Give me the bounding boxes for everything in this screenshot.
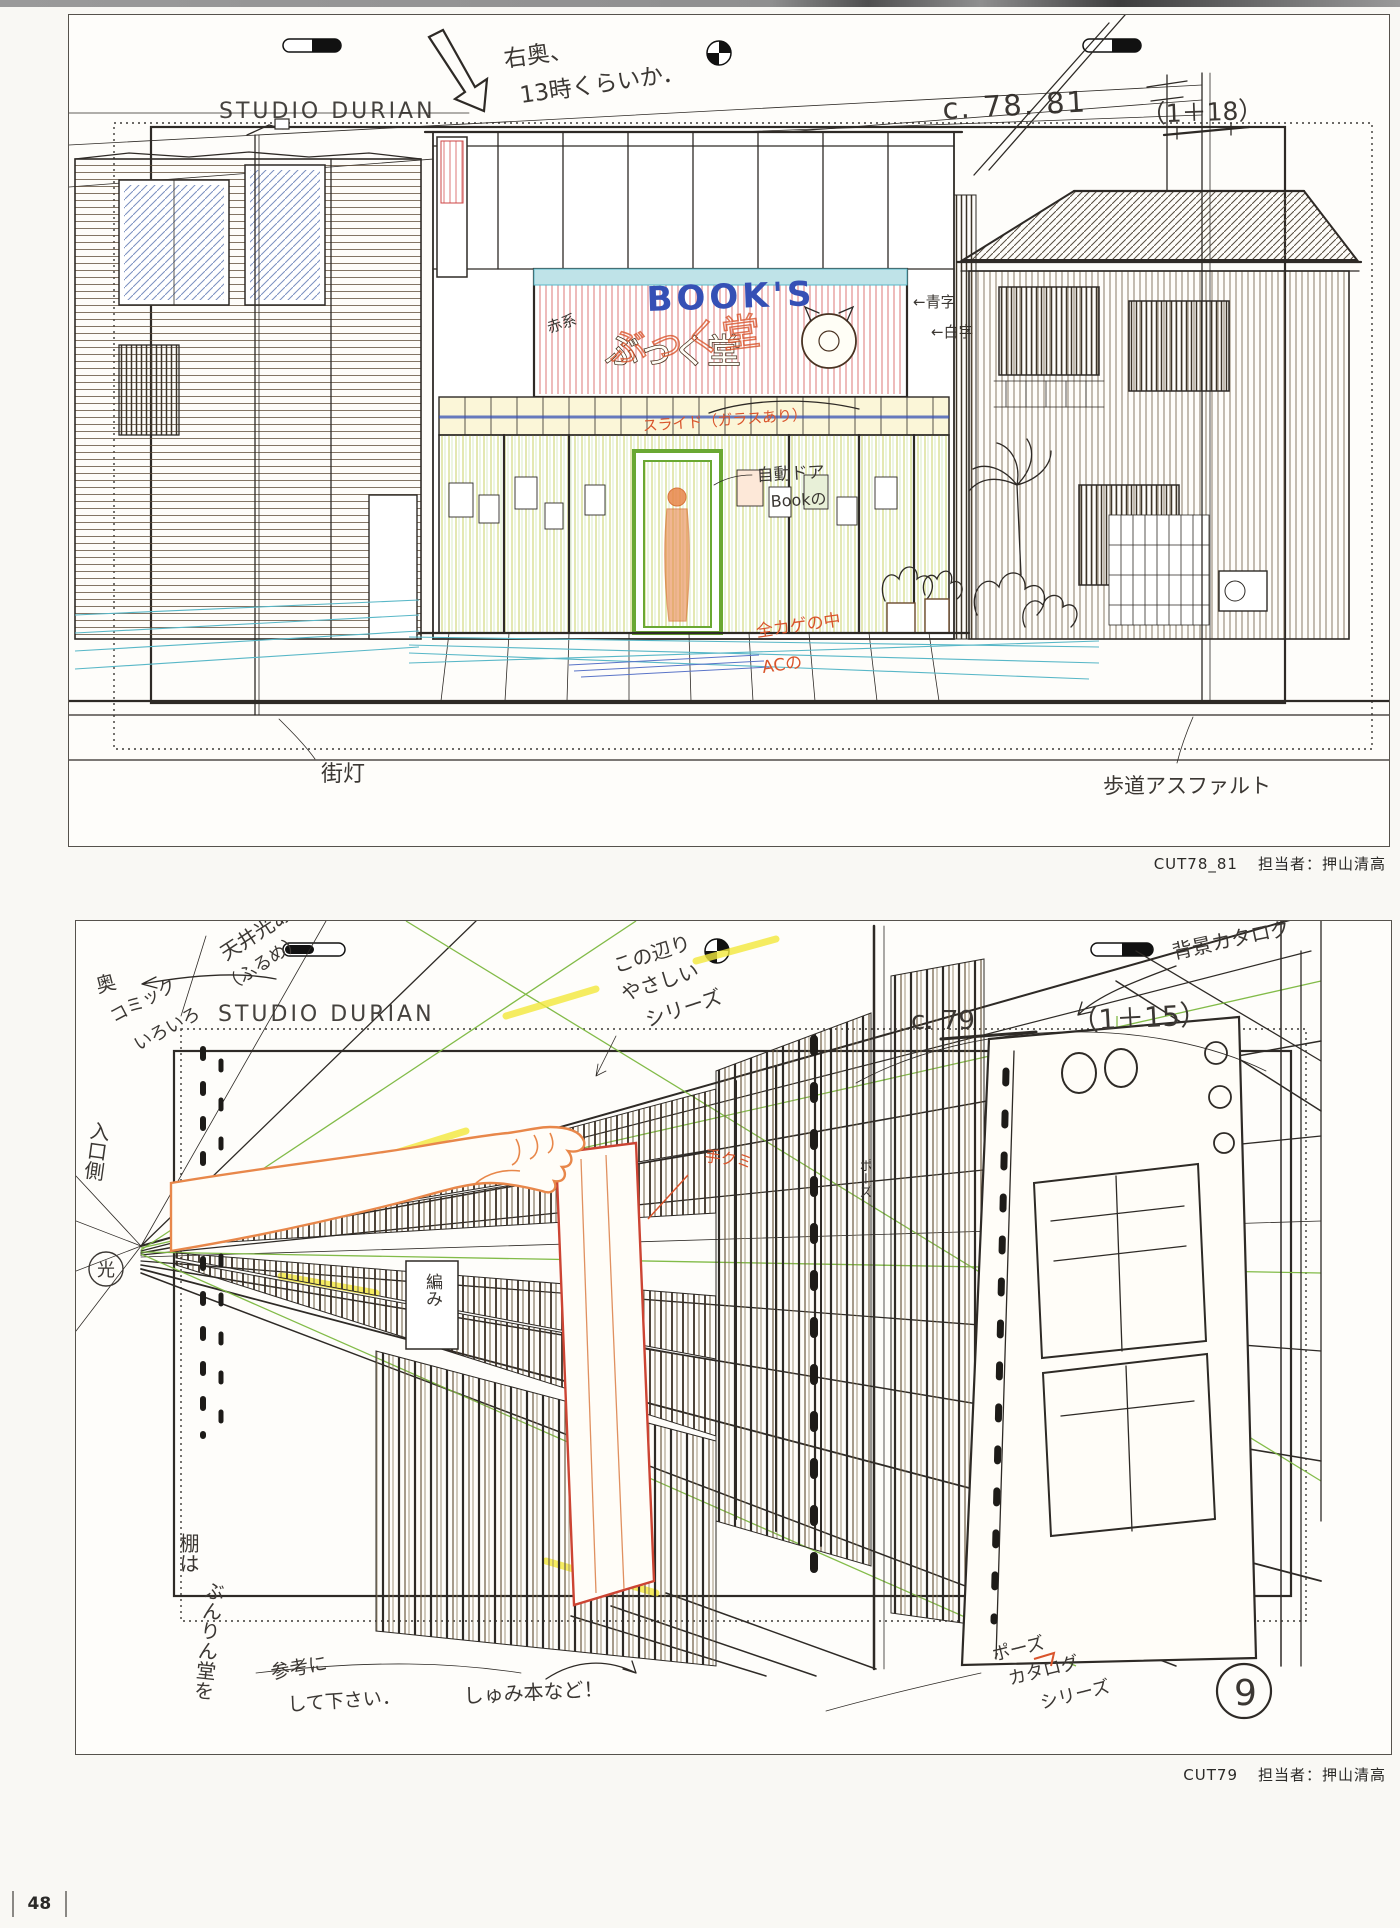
registration-pill-right [1083, 39, 1141, 52]
studio-header: STUDIO DURIAN [218, 1002, 435, 1027]
caption-staff: 担当者：押山清高 [1258, 855, 1386, 873]
note-entrance: 入口側 [80, 1119, 112, 1182]
lattice-fence [1109, 515, 1209, 625]
page-number-bar [65, 1891, 67, 1917]
layout-sheet-cut79: STUDIO DURIAN [75, 920, 1392, 1755]
circled-number: 9 [1217, 1664, 1271, 1718]
note-book: Bookの [770, 489, 827, 511]
page-number-bar [12, 1891, 14, 1917]
studio-header: STUDIO DURIAN [219, 99, 436, 124]
caption-cut-label: CUT78_81 [1154, 855, 1238, 873]
ac-unit [1219, 571, 1267, 611]
note-hobby: しゅみ本など！ [463, 1677, 604, 1708]
note-shelf-2: ぶんりん堂を [190, 1580, 226, 1702]
cut-number-prefix: c. 79 [911, 1006, 975, 1036]
magazine-rack [962, 1017, 1256, 1665]
book-cover: 編み [406, 1261, 458, 1349]
left-building [75, 152, 421, 639]
note-sidewalk: 歩道アスファルト [1103, 774, 1271, 798]
street-lamp-note: 街灯 [279, 719, 365, 787]
registration-pill-right [1091, 943, 1153, 956]
pulled-book [556, 1143, 654, 1605]
caption-staff: 担当者：押山清高 [1258, 1766, 1386, 1784]
caption-cut79: CUT79担当者：押山清高 [1183, 1764, 1386, 1785]
note-shelf: 棚は [176, 1533, 200, 1573]
note-blue-text: ←青字 [913, 293, 956, 311]
layout-sheet-cut78-81: STUDIO DURIAN 右奥、 13時くらいか． c. 78. 81 （1＋… [68, 14, 1390, 847]
caption-cut78-81: CUT78_81担当者：押山清高 [1154, 853, 1386, 874]
note-auto-door: 自動ドア [756, 462, 825, 486]
shop-sign: BOOK'S ぶっく堂 ぶっく堂 赤系 [534, 269, 907, 397]
note-shelf-3: 参考に [269, 1652, 329, 1684]
page-number-value: 48 [28, 1894, 52, 1914]
note-direction: 右奥、 [502, 38, 574, 73]
note-back: 奥 [93, 969, 119, 997]
right-house [957, 75, 1361, 639]
time-note: 右奥、 13時くらいか． [429, 30, 686, 111]
transom: スライド（ガラスあり） [439, 397, 949, 435]
page-number: 48 [12, 1891, 67, 1917]
sidewalk-note: 歩道アスファルト [1103, 717, 1271, 798]
spine-label: ポーズ [857, 1159, 872, 1198]
registration-circle [707, 41, 731, 65]
storefront-glass [439, 435, 962, 633]
storefront-sketch: STUDIO DURIAN 右奥、 13時くらいか． c. 78. 81 （1＋… [69, 15, 1389, 846]
note-bg-catalog: 背景カタログ [1170, 921, 1292, 964]
registration-pill-left [283, 39, 341, 52]
note-entrance-light: 光 [97, 1260, 115, 1281]
note-pose-3: シリーズ [1038, 1676, 1112, 1714]
bookshelf-sketch: STUDIO DURIAN [76, 921, 1391, 1754]
artbook-page: STUDIO DURIAN 右奥、 13時くらいか． c. 78. 81 （1＋… [0, 0, 1400, 1928]
cover-label: 編み [422, 1273, 443, 1307]
note-street-lamp: 街灯 [321, 762, 365, 787]
scan-edge [0, 0, 1400, 7]
circle-number-value: 9 [1234, 1673, 1257, 1714]
bookstore-facade: BOOK'S ぶっく堂 ぶっく堂 赤系 ←青字 ←白字 [425, 132, 974, 639]
note-shade-2: ACの [761, 653, 804, 678]
caption-cut-label: CUT79 [1183, 1766, 1238, 1784]
note-shelf-4: して下さい． [287, 1686, 402, 1716]
